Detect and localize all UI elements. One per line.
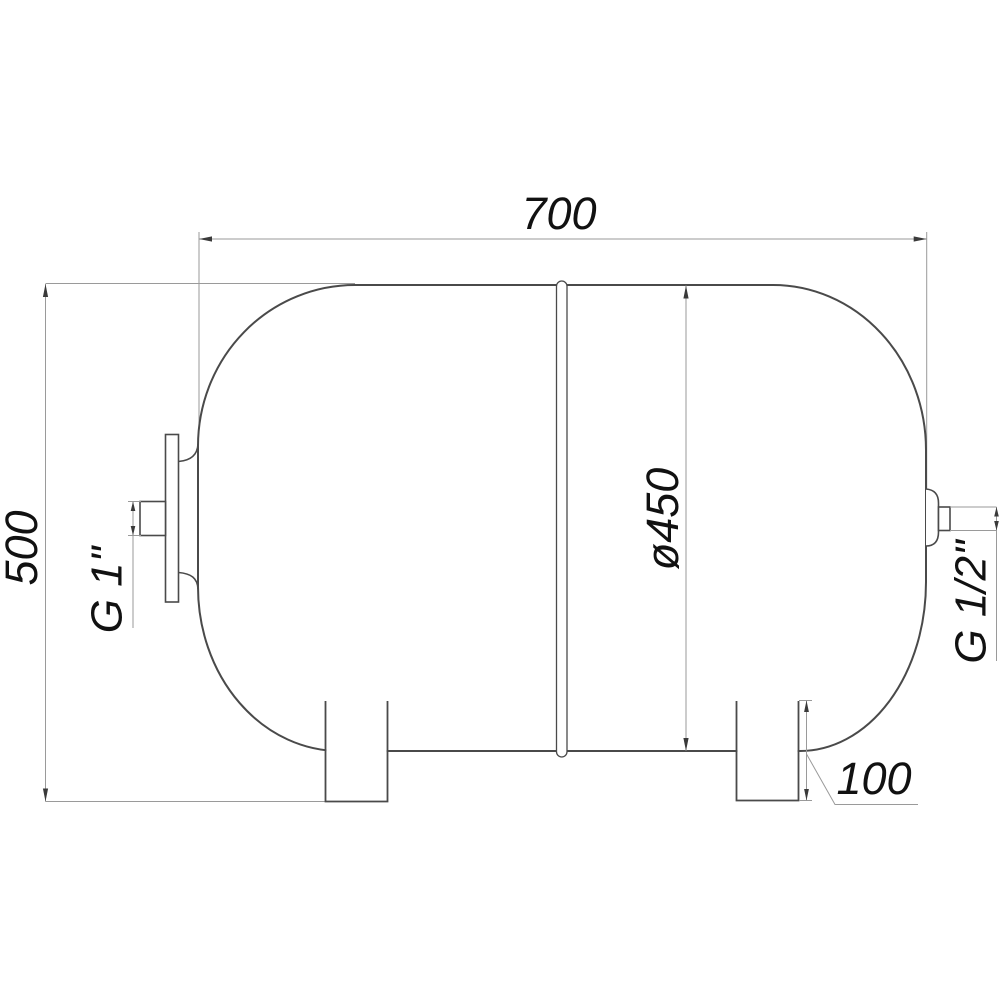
dim-label-left-connection: G 1" bbox=[82, 544, 131, 633]
right-leg-fill bbox=[737, 701, 797, 801]
left-nipple bbox=[140, 502, 166, 536]
arrow-g12-top bbox=[994, 507, 999, 517]
left-connection bbox=[140, 435, 198, 603]
arrow-g1-bottom bbox=[131, 526, 136, 536]
arrow-g1-top bbox=[131, 502, 136, 512]
right-nipple bbox=[939, 507, 951, 531]
weld-seam bbox=[557, 281, 568, 757]
tank-drawing-svg: 700 500 ø450 G 1" G 1/2" 100 bbox=[0, 0, 1000, 1000]
dim-label-diameter: ø450 bbox=[637, 468, 688, 571]
left-leg-fill bbox=[326, 701, 386, 801]
technical-drawing: 700 500 ø450 G 1" G 1/2" 100 bbox=[0, 0, 1000, 1000]
dim-label-overall-width: 700 bbox=[521, 188, 596, 239]
right-leg bbox=[737, 701, 799, 801]
arrow-g12-bottom bbox=[994, 521, 999, 531]
right-connection bbox=[926, 489, 950, 546]
arrow-width-left bbox=[199, 236, 212, 241]
arrow-width-right bbox=[914, 236, 927, 241]
left-flange bbox=[166, 435, 179, 603]
dim-label-leg-height: 100 bbox=[836, 753, 911, 804]
left-neck-fillet-top bbox=[179, 444, 199, 462]
arrow-height-bottom bbox=[43, 789, 48, 802]
left-neck-fillet-bottom bbox=[179, 573, 199, 590]
dim-label-right-connection: G 1/2" bbox=[946, 538, 995, 664]
right-port-boss bbox=[926, 489, 939, 546]
arrow-height-top bbox=[43, 284, 48, 297]
arrow-leg-bottom bbox=[804, 789, 809, 801]
left-leg bbox=[326, 701, 388, 802]
dim-label-overall-height: 500 bbox=[0, 510, 47, 585]
